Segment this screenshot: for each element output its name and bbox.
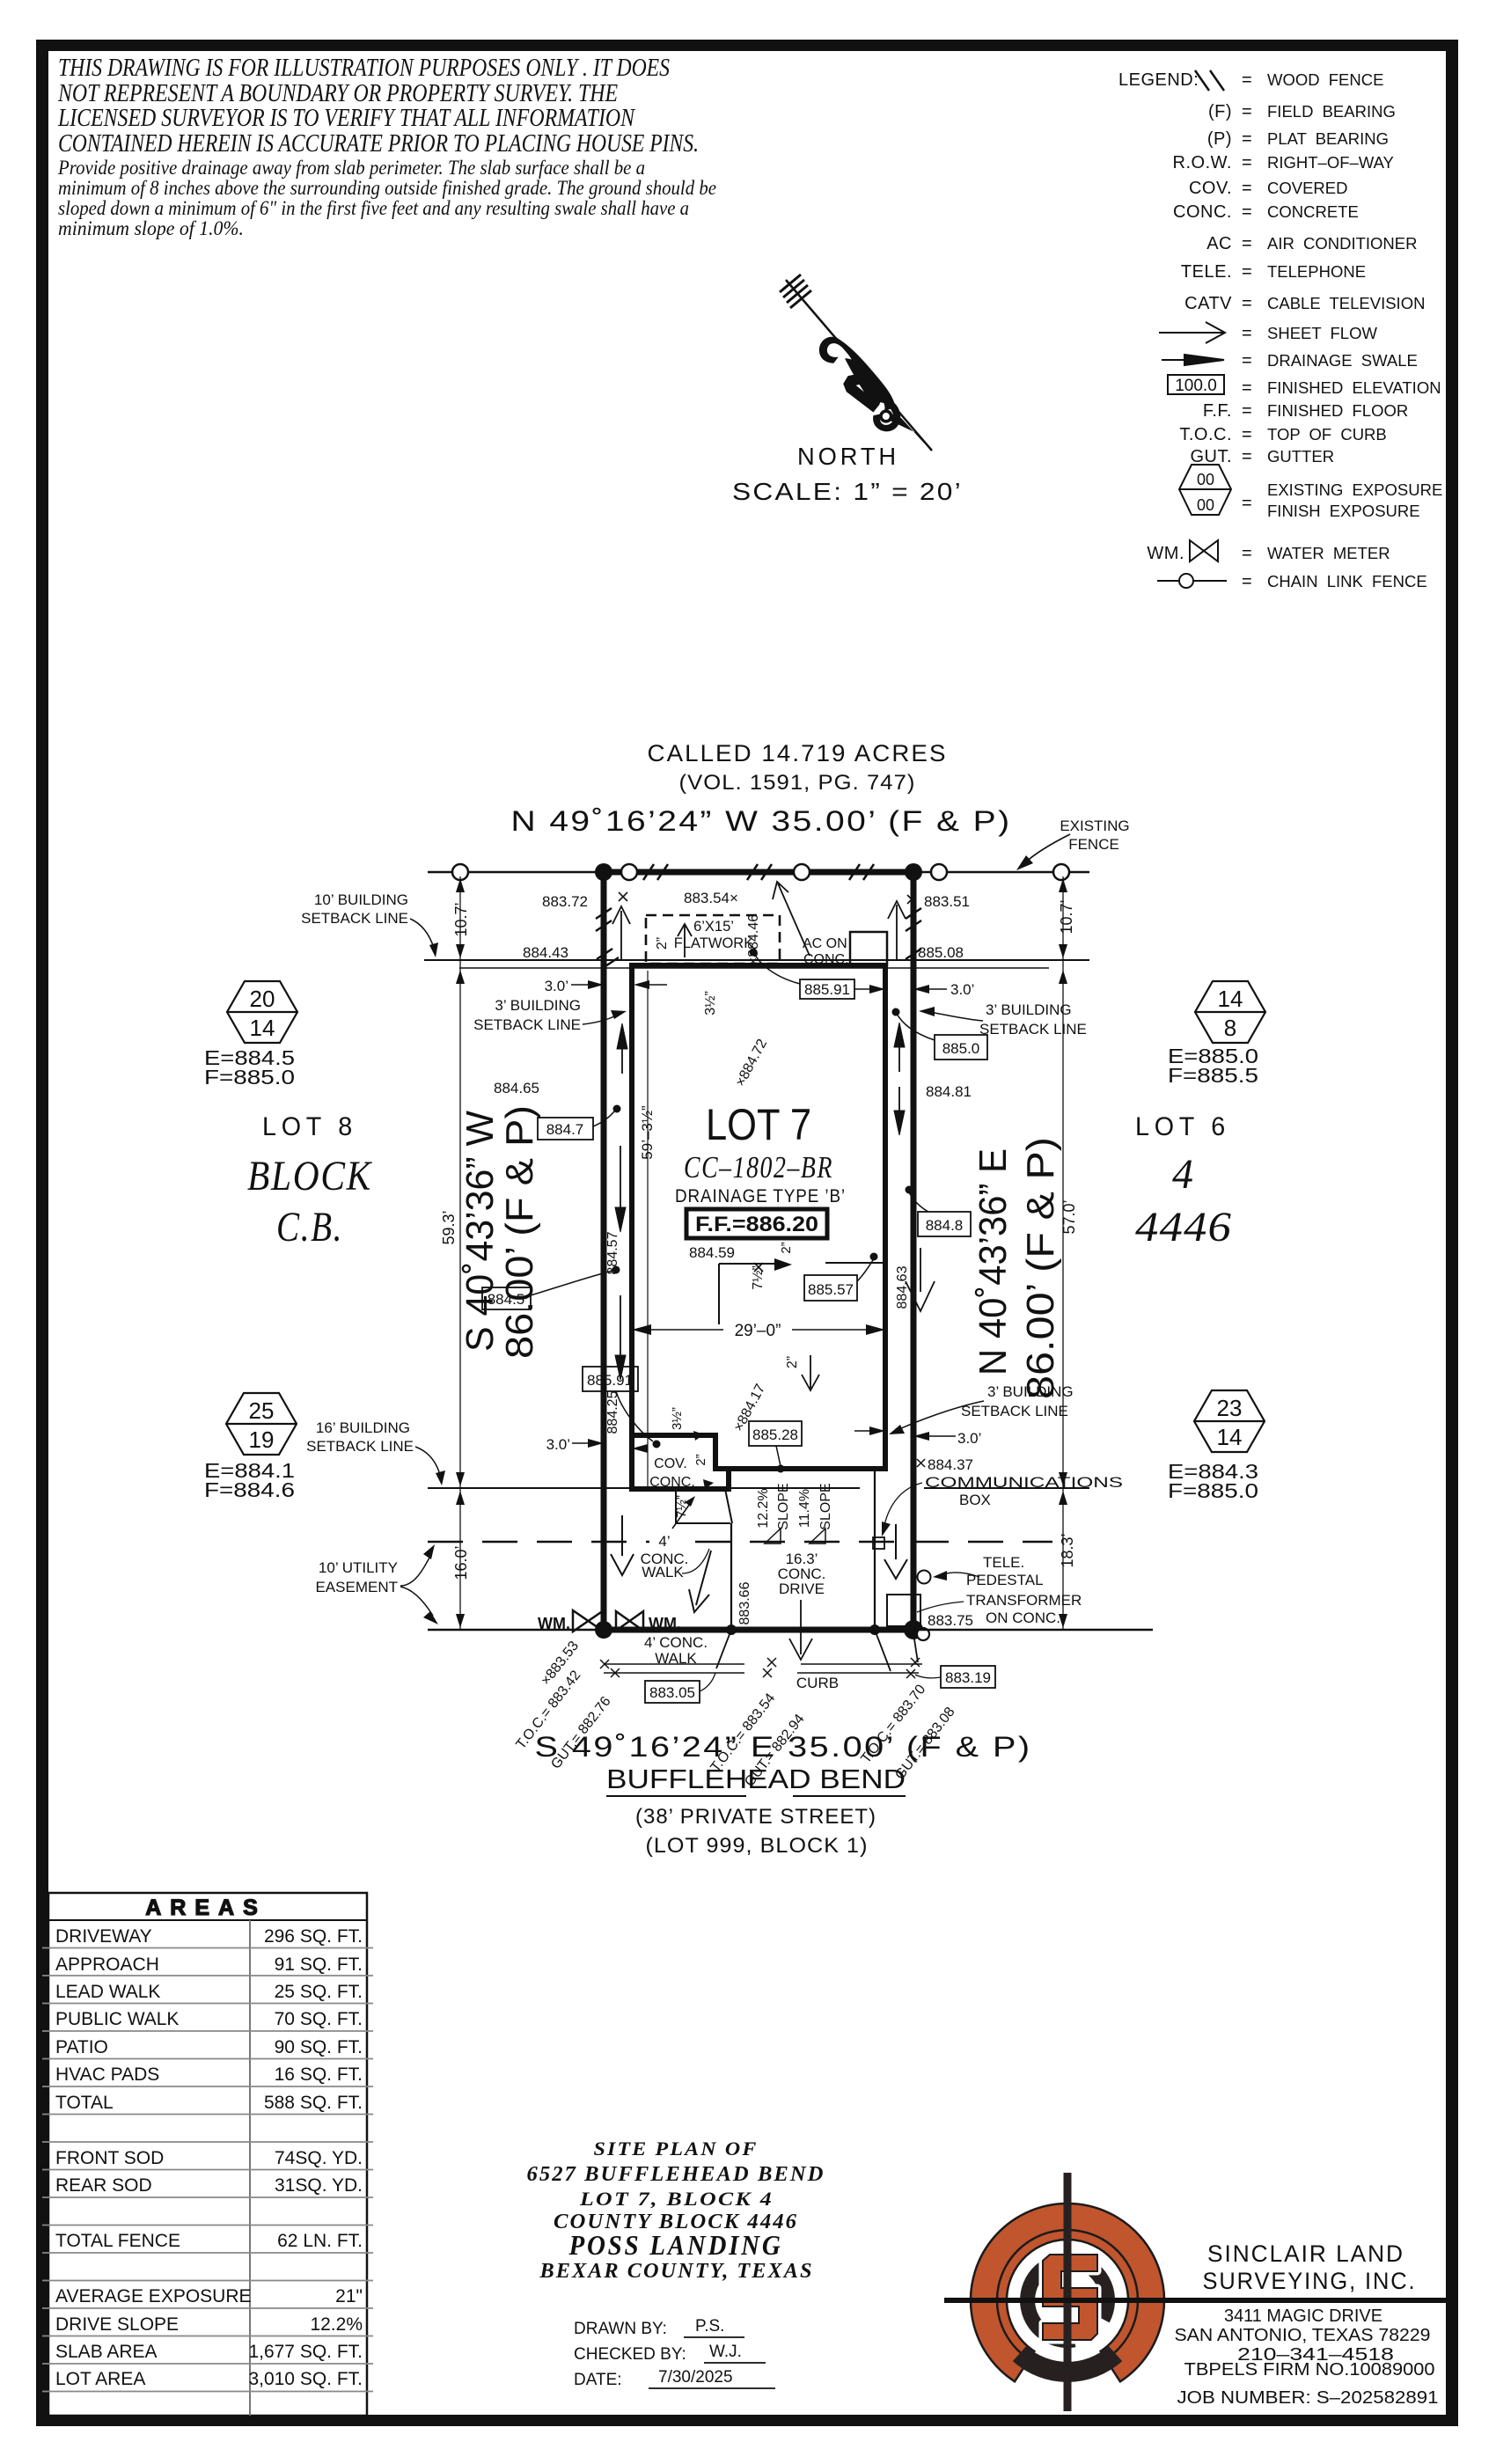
svg-text:F=885.5: F=885.5	[1168, 1064, 1258, 1087]
svg-text:3.0’: 3.0’	[957, 1430, 981, 1447]
svg-text:21": 21"	[335, 2286, 363, 2306]
svg-text:11.4%: 11.4%	[797, 1489, 812, 1528]
svg-text:8: 8	[1224, 1015, 1236, 1041]
svg-text:3½”: 3½”	[703, 991, 718, 1016]
svg-text:SINCLAIR LAND: SINCLAIR LAND	[1207, 2240, 1404, 2267]
svg-text:NORTH: NORTH	[797, 443, 899, 470]
svg-text:(VOL. 1591, PG. 747): (VOL. 1591, PG. 747)	[679, 771, 916, 795]
svg-text:1,677 SQ. FT.: 1,677 SQ. FT.	[248, 2342, 363, 2362]
svg-text:3,010 SQ. FT.: 3,010 SQ. FT.	[248, 2369, 363, 2389]
svg-text:00: 00	[1197, 496, 1214, 514]
svg-text:TBPELS FIRM NO.10089000: TBPELS FIRM NO.10089000	[1184, 2360, 1435, 2380]
svg-text:3½”: 3½”	[670, 1407, 685, 1430]
svg-text:DRAINAGE TYPE ’B’: DRAINAGE TYPE ’B’	[675, 1186, 846, 1206]
svg-text:FIELD BEARING: FIELD BEARING	[1267, 102, 1396, 121]
svg-text:LEGEND:: LEGEND:	[1118, 70, 1199, 90]
svg-text:JOB NUMBER: S–202582891: JOB NUMBER: S–202582891	[1177, 2388, 1439, 2408]
svg-text:SETBACK LINE: SETBACK LINE	[961, 1403, 1068, 1419]
svg-text:PUBLIC WALK: PUBLIC WALK	[55, 2009, 179, 2029]
svg-text:2”: 2”	[655, 937, 670, 950]
svg-text:=: =	[1242, 494, 1252, 513]
svg-text:TELEPHONE: TELEPHONE	[1267, 262, 1366, 281]
svg-text:P.S.: P.S.	[695, 2317, 724, 2336]
svg-text:CONC.: CONC.	[803, 952, 849, 967]
svg-text:ON CONC.: ON CONC.	[986, 1610, 1060, 1626]
svg-text:57.0’: 57.0’	[1060, 1199, 1078, 1234]
svg-text:74SQ. YD.: 74SQ. YD.	[275, 2148, 363, 2168]
svg-text:(38’ PRIVATE STREET): (38’ PRIVATE STREET)	[635, 1805, 876, 1829]
svg-text:THIS DRAWING IS FOR ILLUSTRATI: THIS DRAWING IS FOR ILLUSTRATION PURPOSE…	[58, 55, 670, 82]
svg-text:(LOT 999, BLOCK 1): (LOT 999, BLOCK 1)	[646, 1834, 869, 1858]
svg-text:SLOPE: SLOPE	[776, 1483, 791, 1529]
svg-text:=: =	[1242, 294, 1252, 313]
svg-text:DRIVE SLOPE: DRIVE SLOPE	[55, 2314, 179, 2335]
svg-text:WM.: WM.	[538, 1615, 570, 1632]
svg-text:70 SQ. FT.: 70 SQ. FT.	[275, 2009, 363, 2029]
svg-text:=: =	[1242, 544, 1252, 563]
svg-text:885.91: 885.91	[587, 1372, 633, 1389]
svg-text:=: =	[1242, 351, 1252, 370]
svg-text:TELE.: TELE.	[1181, 262, 1232, 282]
svg-text:F=884.6: F=884.6	[204, 1478, 295, 1501]
svg-text:884.81: 884.81	[926, 1083, 972, 1100]
svg-text:7/30/2025: 7/30/2025	[658, 2368, 733, 2387]
svg-text:BLOCK: BLOCK	[247, 1153, 373, 1199]
svg-text:TELE.: TELE.	[983, 1554, 1024, 1571]
svg-text:WATER METER: WATER METER	[1267, 544, 1390, 562]
svg-text:2”: 2”	[693, 1454, 708, 1465]
svg-text:minimum of 8 inches above the: minimum of 8 inches above the surroundin…	[58, 177, 716, 199]
svg-text:FENCE: FENCE	[1068, 836, 1119, 853]
svg-text:NOT REPRESENT A BOUNDARY OR PR: NOT REPRESENT A BOUNDARY OR PROPERTY SUR…	[57, 80, 618, 107]
svg-text:3.0’: 3.0’	[546, 1436, 570, 1453]
svg-text:90 SQ. FT.: 90 SQ. FT.	[275, 2037, 363, 2057]
svg-text:FLATWORK: FLATWORK	[674, 935, 753, 951]
svg-text:BUFFLEHEAD BEND: BUFFLEHEAD BEND	[606, 1764, 906, 1794]
svg-text:F=885.0: F=885.0	[204, 1066, 295, 1089]
svg-text:AC ON: AC ON	[803, 936, 847, 951]
svg-text:588 SQ. FT.: 588 SQ. FT.	[264, 2093, 363, 2113]
svg-text:SITE PLAN OF: SITE PLAN OF	[594, 2138, 759, 2160]
svg-text:RIGHT–OF–WAY: RIGHT–OF–WAY	[1267, 153, 1394, 172]
svg-text:S 40˚43’36” W: S 40˚43’36” W	[458, 1111, 502, 1352]
svg-text:DRAINAGE SWALE: DRAINAGE SWALE	[1267, 351, 1418, 370]
svg-text:W.J.: W.J.	[709, 2343, 742, 2361]
svg-text:C.B.: C.B.	[276, 1204, 343, 1250]
svg-text:SAN ANTONIO, TEXAS 78229: SAN ANTONIO, TEXAS 78229	[1175, 2326, 1431, 2345]
svg-text:884.37: 884.37	[928, 1456, 973, 1473]
svg-text:=: =	[1242, 262, 1252, 282]
svg-text:LOT 8: LOT 8	[262, 1112, 357, 1141]
svg-text:100.0: 100.0	[1175, 377, 1217, 395]
svg-text:59.3’: 59.3’	[440, 1210, 458, 1244]
svg-text:884.7: 884.7	[546, 1121, 584, 1138]
svg-text:86.00’ (F & P): 86.00’ (F & P)	[498, 1105, 541, 1359]
svg-text:CATV: CATV	[1184, 294, 1232, 313]
svg-text:WALK: WALK	[642, 1564, 684, 1580]
svg-text:COV.: COV.	[1189, 179, 1232, 198]
svg-text:CHAIN LINK FENCE: CHAIN LINK FENCE	[1267, 572, 1427, 590]
svg-text:885.0: 885.0	[942, 1040, 980, 1057]
svg-text:4446: 4446	[1135, 1204, 1232, 1250]
svg-text:Provide positive drainage away: Provide positive drainage away from slab…	[57, 157, 645, 179]
svg-text:4’: 4’	[658, 1533, 670, 1550]
svg-text:COVERED: COVERED	[1267, 179, 1348, 197]
svg-text:883.19: 883.19	[945, 1669, 991, 1686]
svg-text:883.72: 883.72	[542, 893, 588, 910]
svg-text:×884.46: ×884.46	[746, 914, 761, 965]
svg-text:DATE:: DATE:	[574, 2371, 622, 2389]
svg-text:86.00’ (F & P): 86.00’ (F & P)	[1019, 1137, 1062, 1399]
svg-text:=: =	[1242, 378, 1252, 398]
svg-text:CALLED 14.719 ACRES: CALLED 14.719 ACRES	[648, 740, 948, 766]
svg-text:LOT AREA: LOT AREA	[55, 2369, 145, 2389]
svg-text:WM.: WM.	[649, 1615, 681, 1632]
svg-text:R.O.W.: R.O.W.	[1173, 153, 1232, 172]
svg-text:(P): (P)	[1207, 129, 1232, 149]
svg-text:6’X15’: 6’X15’	[693, 919, 734, 935]
svg-text:6527 BUFFLEHEAD BEND: 6527 BUFFLEHEAD BEND	[527, 2163, 825, 2186]
svg-text:4: 4	[1172, 1151, 1193, 1198]
svg-text:EXISTING: EXISTING	[1060, 818, 1129, 834]
svg-text:REAR SOD: REAR SOD	[55, 2175, 152, 2196]
svg-text:62 LN. FT.: 62 LN. FT.	[277, 2231, 363, 2251]
svg-text:885.28: 885.28	[752, 1426, 798, 1443]
svg-text:HVAC PADS: HVAC PADS	[55, 2064, 159, 2085]
svg-text:CC–1802–BR: CC–1802–BR	[684, 1150, 833, 1184]
svg-text:CABLE TELEVISION: CABLE TELEVISION	[1267, 294, 1425, 312]
svg-text:12.2%: 12.2%	[310, 2314, 363, 2335]
svg-text:3411 MAGIC DRIVE: 3411 MAGIC DRIVE	[1224, 2306, 1382, 2326]
svg-text:CHECKED BY:: CHECKED BY:	[574, 2345, 686, 2364]
svg-text:COMMUNICATIONS: COMMUNICATIONS	[925, 1474, 1123, 1491]
svg-text:AC: AC	[1206, 234, 1232, 253]
svg-text:S 49˚16’24” E 35.00’ (F &: S 49˚16’24” E 35.00’ (F & P)	[535, 1731, 1032, 1763]
svg-text:BOX: BOX	[959, 1492, 991, 1508]
svg-text:PATIO: PATIO	[55, 2037, 108, 2057]
svg-text:884.8: 884.8	[926, 1217, 964, 1234]
svg-text:BEXAR COUNTY, TEXAS: BEXAR COUNTY, TEXAS	[539, 2260, 813, 2283]
svg-text:12.2%: 12.2%	[756, 1488, 771, 1528]
svg-text:AVERAGE EXPOSURE: AVERAGE EXPOSURE	[55, 2286, 252, 2306]
svg-text:SETBACK LINE: SETBACK LINE	[301, 910, 408, 927]
svg-text:296 SQ. FT.: 296 SQ. FT.	[264, 1926, 363, 1947]
svg-text:SURVEYING, INC.: SURVEYING, INC.	[1203, 2268, 1417, 2294]
svg-text:25 SQ. FT.: 25 SQ. FT.	[275, 1982, 363, 2002]
svg-text:DRIVE: DRIVE	[779, 1580, 825, 1597]
svg-text:884.65: 884.65	[494, 1080, 539, 1096]
svg-text:7½”: 7½”	[751, 1265, 766, 1290]
svg-text:=: =	[1242, 70, 1252, 90]
svg-text:=: =	[1242, 202, 1252, 222]
svg-text:GUTTER: GUTTER	[1267, 447, 1334, 466]
svg-text:2”: 2”	[779, 1242, 794, 1253]
svg-text:884.63: 884.63	[895, 1265, 910, 1309]
svg-text:18.3’: 18.3’	[1059, 1533, 1076, 1567]
svg-text:885.91: 885.91	[804, 981, 850, 998]
svg-text:N 40˚43’36” E: N 40˚43’36” E	[972, 1148, 1015, 1375]
svg-text:N 49˚16’24” W 35.00’ (F &: N 49˚16’24” W 35.00’ (F & P)	[511, 805, 1012, 837]
svg-text:FRONT SOD: FRONT SOD	[55, 2148, 164, 2168]
svg-text:883.05: 883.05	[649, 1684, 695, 1701]
svg-text:(F): (F)	[1208, 102, 1232, 121]
svg-text:883.54×: 883.54×	[684, 890, 738, 906]
svg-text:CONC.: CONC.	[649, 1475, 695, 1490]
svg-text:3’ BUILDING: 3’ BUILDING	[495, 997, 581, 1014]
svg-text:APPROACH: APPROACH	[55, 1954, 159, 1975]
svg-text:F.F.=886.20: F.F.=886.20	[695, 1213, 818, 1236]
svg-text:=: =	[1242, 425, 1252, 444]
svg-text:TOTAL: TOTAL	[55, 2093, 114, 2113]
svg-text:POSS LANDING: POSS LANDING	[568, 2229, 783, 2261]
svg-text:minimum slope of 1.0%.: minimum slope of 1.0%.	[58, 217, 244, 239]
svg-text:CURB: CURB	[796, 1675, 839, 1691]
svg-text:883.66: 883.66	[737, 1581, 752, 1624]
svg-text:10.7’: 10.7’	[452, 902, 470, 936]
svg-text:883.75: 883.75	[928, 1612, 973, 1629]
svg-text:EASEMENT: EASEMENT	[315, 1579, 398, 1595]
svg-text:GUT.: GUT.	[1190, 447, 1232, 466]
svg-text:885.08: 885.08	[918, 944, 964, 961]
svg-text:LOT 7, BLOCK 4: LOT 7, BLOCK 4	[579, 2188, 774, 2210]
svg-text:SETBACK LINE: SETBACK LINE	[473, 1016, 581, 1033]
svg-text:T.O.C.: T.O.C.	[1179, 425, 1232, 444]
svg-text:EXISTING EXPOSURE: EXISTING EXPOSURE	[1267, 480, 1442, 499]
svg-text:SLOPE: SLOPE	[818, 1483, 833, 1529]
svg-text:16’ BUILDING: 16’ BUILDING	[316, 1419, 410, 1436]
svg-text:DRIVEWAY: DRIVEWAY	[55, 1926, 152, 1947]
svg-text:20: 20	[250, 986, 275, 1012]
svg-text:TOTAL FENCE: TOTAL FENCE	[55, 2231, 180, 2251]
svg-text:SLAB AREA: SLAB AREA	[55, 2342, 158, 2362]
svg-text:23: 23	[1217, 1395, 1243, 1421]
svg-text:AIR CONDITIONER: AIR CONDITIONER	[1267, 234, 1417, 253]
svg-text:10’ UTILITY: 10’ UTILITY	[319, 1559, 398, 1576]
svg-text:16.0’: 16.0’	[452, 1545, 470, 1580]
svg-text:91 SQ. FT.: 91 SQ. FT.	[275, 1954, 363, 1975]
svg-text:WM.: WM.	[1147, 544, 1184, 563]
svg-text:=: =	[1242, 153, 1252, 172]
svg-text:FINISHED ELEVATION: FINISHED ELEVATION	[1267, 378, 1441, 397]
svg-text:3.0’: 3.0’	[950, 981, 974, 998]
svg-text:14: 14	[1217, 1424, 1243, 1450]
svg-text:CONCRETE: CONCRETE	[1267, 202, 1359, 221]
svg-text:COV.: COV.	[654, 1456, 687, 1471]
svg-text:=: =	[1242, 324, 1252, 343]
svg-text:884.57: 884.57	[605, 1231, 620, 1274]
svg-text:LOT 7: LOT 7	[706, 1100, 811, 1149]
svg-text:TOP OF CURB: TOP OF CURB	[1267, 425, 1387, 444]
svg-text:14: 14	[250, 1015, 275, 1041]
svg-text:SETBACK LINE: SETBACK LINE	[979, 1021, 1087, 1038]
svg-text:F.F.: F.F.	[1203, 401, 1232, 421]
svg-text:10.7’: 10.7’	[1058, 899, 1075, 934]
svg-text:SCALE: 1” = 20’: SCALE: 1” = 20’	[732, 478, 963, 505]
svg-text:LOT 6: LOT 6	[1135, 1112, 1230, 1141]
svg-text:=: =	[1242, 102, 1252, 121]
svg-text:16 SQ. FT.: 16 SQ. FT.	[275, 2064, 363, 2085]
svg-text:=: =	[1242, 447, 1252, 466]
svg-text:883.51: 883.51	[924, 893, 970, 910]
svg-text:19: 19	[249, 1426, 275, 1453]
svg-text:CONC.: CONC.	[1173, 202, 1232, 222]
svg-text:=: =	[1242, 129, 1252, 149]
svg-text:LICENSED SURVEYOR IS TO VERIFY: LICENSED SURVEYOR IS TO VERIFY THAT ALL …	[57, 105, 635, 132]
svg-text:59’–3½”: 59’–3½”	[639, 1105, 656, 1160]
svg-text:SETBACK LINE: SETBACK LINE	[306, 1438, 414, 1455]
svg-text:885.57: 885.57	[808, 1281, 854, 1298]
svg-text:14: 14	[1218, 986, 1243, 1012]
svg-text:=: =	[1242, 234, 1252, 253]
svg-text:29’–0”: 29’–0”	[735, 1322, 781, 1340]
svg-text:sloped down a minimum of 6" in: sloped down a minimum of 6" in the first…	[58, 197, 689, 219]
svg-text:31SQ. YD.: 31SQ. YD.	[275, 2175, 363, 2196]
svg-text:PEDESTAL: PEDESTAL	[966, 1572, 1044, 1588]
svg-text:=: =	[1242, 179, 1252, 198]
svg-text:FINISHED FLOOR: FINISHED FLOOR	[1267, 401, 1408, 420]
svg-text:WOOD FENCE: WOOD FENCE	[1267, 70, 1383, 89]
svg-text:F=885.0: F=885.0	[1168, 1479, 1258, 1502]
svg-text:884.59: 884.59	[689, 1244, 735, 1261]
svg-text:FINISH EXPOSURE: FINISH EXPOSURE	[1267, 502, 1420, 520]
svg-text:884.43: 884.43	[523, 944, 568, 961]
svg-text:3.0’: 3.0’	[545, 978, 568, 994]
svg-text:2”: 2”	[785, 1356, 800, 1368]
svg-text:PLAT BEARING: PLAT BEARING	[1267, 129, 1389, 148]
svg-text:=: =	[1242, 401, 1252, 421]
svg-text:LEAD WALK: LEAD WALK	[55, 1982, 160, 2002]
svg-text:CONTAINED HEREIN IS ACCURATE P: CONTAINED HEREIN IS ACCURATE PRIOR TO PL…	[58, 130, 699, 158]
svg-text:00: 00	[1197, 471, 1214, 488]
svg-text:25: 25	[249, 1397, 275, 1424]
svg-text:SHEET FLOW: SHEET FLOW	[1267, 324, 1377, 342]
svg-text:TRANSFORMER: TRANSFORMER	[966, 1592, 1082, 1609]
svg-text:DRAWN BY:: DRAWN BY:	[574, 2320, 667, 2338]
svg-text:AREAS: AREAS	[145, 1896, 267, 1920]
svg-text:3’ BUILDING: 3’ BUILDING	[986, 1001, 1072, 1018]
svg-text:4’ CONC.: 4’ CONC.	[644, 1634, 708, 1651]
svg-text:=: =	[1242, 572, 1252, 591]
svg-text:10’ BUILDING: 10’ BUILDING	[314, 891, 408, 908]
